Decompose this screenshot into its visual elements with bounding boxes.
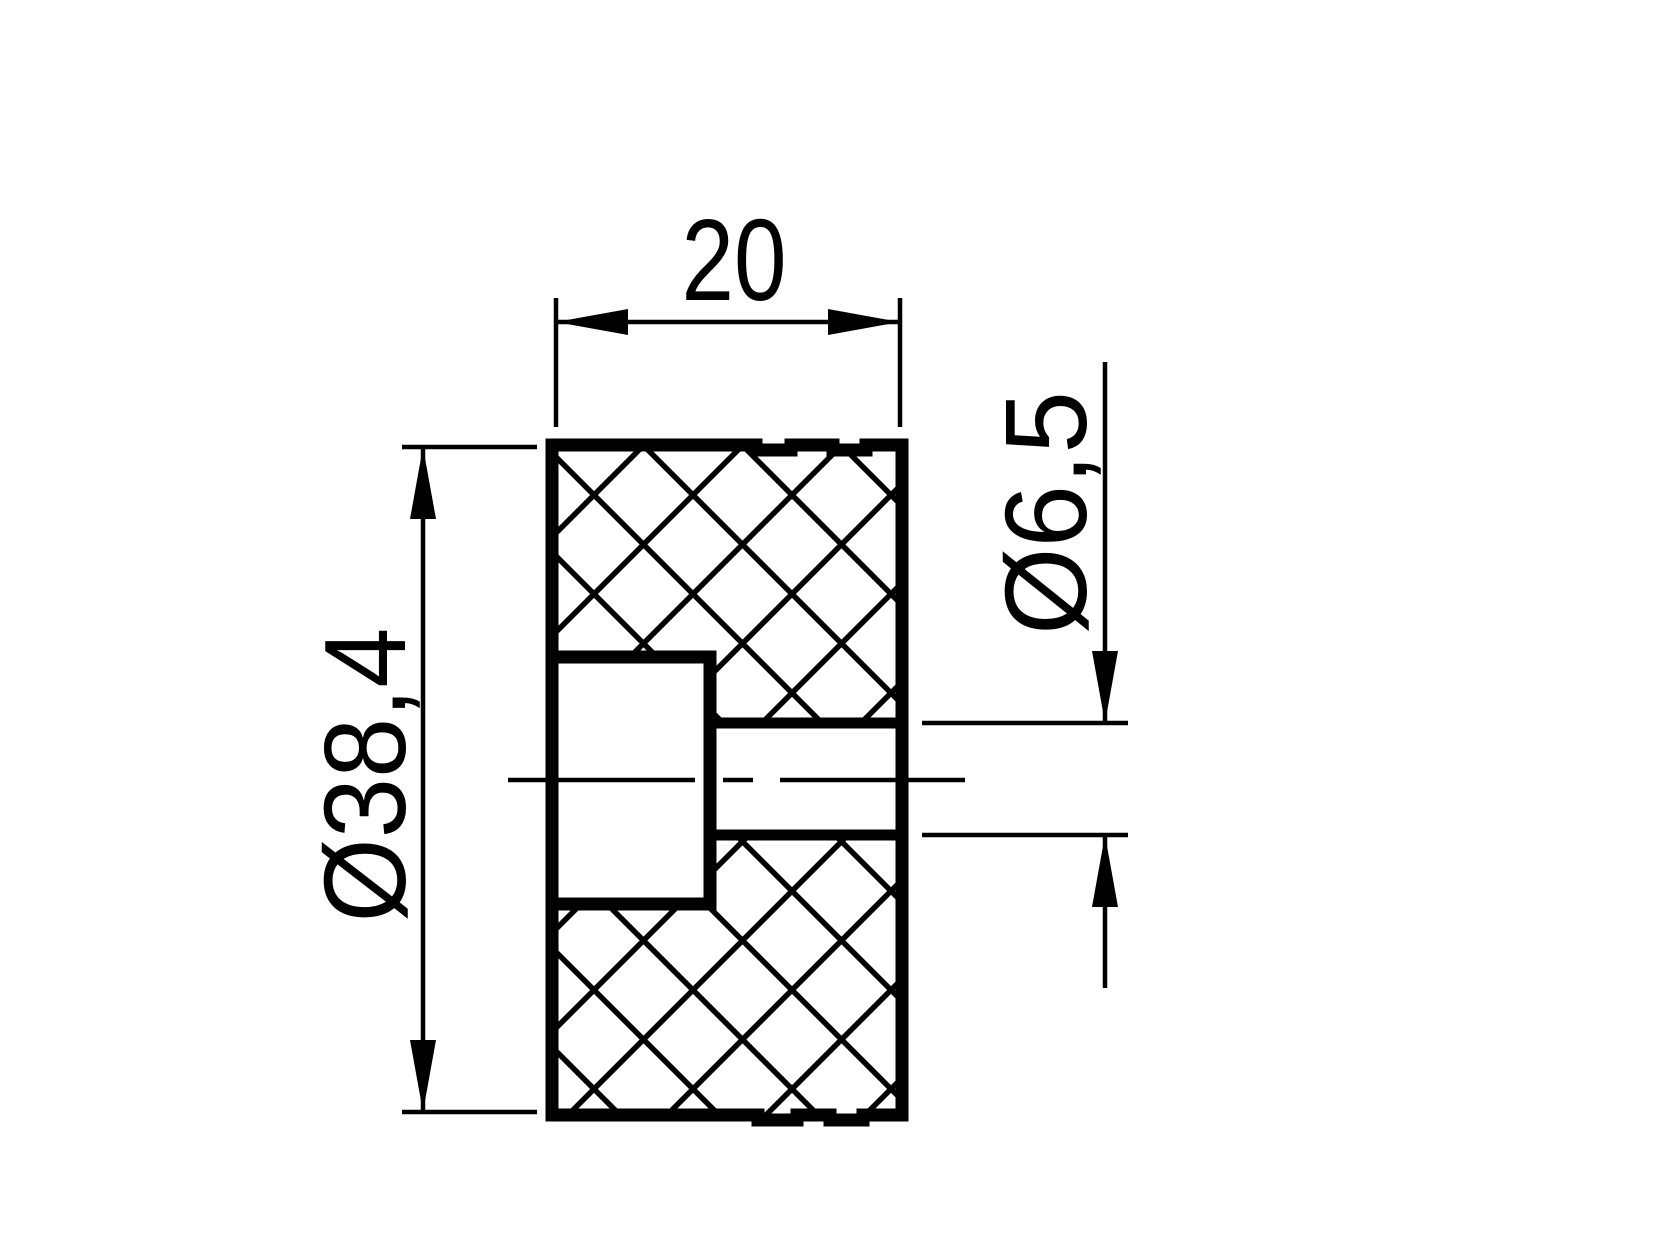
dimension-width: 20 [556,195,900,427]
arrowhead-top [410,447,436,519]
arrowhead-right [828,309,900,335]
drawing-page: 20 Ø38,4 Ø6,5 [0,0,1680,1260]
part-section [508,445,965,1120]
dimension-width-label: 20 [682,195,787,325]
arrowhead-bottom [410,1040,436,1112]
hatch-area-lower [552,835,902,1115]
arrowhead-up [1092,835,1118,907]
dimension-bore-diameter-label: Ø6,5 [981,391,1111,635]
arrowhead-left [556,309,628,335]
arrowhead-down [1092,651,1118,723]
dimension-outer-diameter: Ø38,4 [300,447,537,1112]
technical-drawing-canvas: 20 Ø38,4 Ø6,5 [0,0,1680,1260]
dimension-outer-diameter-label: Ø38,4 [300,628,430,923]
hatch-area-upper [552,445,902,723]
dimension-bore-diameter: Ø6,5 [922,362,1128,988]
